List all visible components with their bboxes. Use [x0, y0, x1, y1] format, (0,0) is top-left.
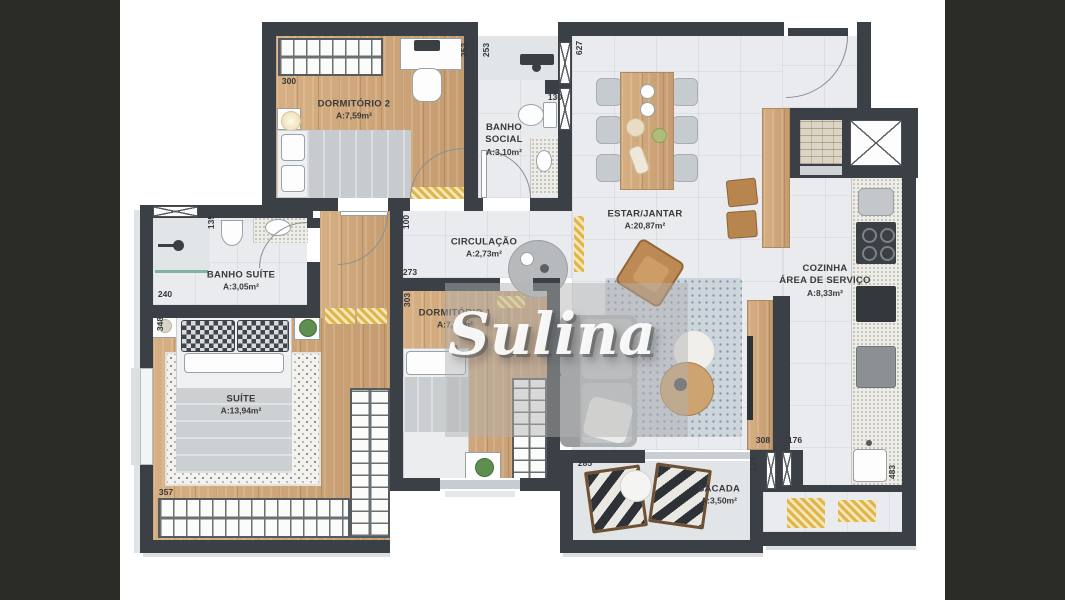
- plant-icon: [299, 319, 317, 337]
- wall: [470, 198, 483, 211]
- room-name: ESTAR/JANTAR: [608, 208, 683, 220]
- dim-label: 303: [402, 293, 412, 307]
- room-name: BANHO SUÍTE: [207, 269, 275, 281]
- blanket-dormitorio-1: [404, 432, 468, 479]
- wall: [530, 198, 572, 211]
- dim-label: 483: [887, 465, 897, 479]
- pillow-checkered: [181, 320, 235, 352]
- dining-chair: [672, 154, 698, 182]
- dim-label: 285: [578, 458, 592, 468]
- wall: [262, 22, 276, 198]
- room-area: A:8,33m²: [779, 288, 870, 299]
- window-dormitorio-1: [440, 478, 520, 491]
- dim-label: 300: [282, 76, 296, 86]
- wall: [307, 218, 320, 228]
- dim-label: 240: [158, 289, 172, 299]
- dim-label: 273: [403, 267, 417, 277]
- floor-service-balcony: [763, 492, 902, 532]
- room-name: ÁREA DE SERVIÇO: [779, 275, 870, 287]
- threshold-estar: [574, 216, 584, 272]
- tv-wall: [773, 296, 790, 450]
- room-area: A:3,10m²: [485, 147, 522, 158]
- room-name: COZINHA: [779, 263, 870, 275]
- monitor-icon: [414, 40, 440, 51]
- exterior-shadow-sacada: [563, 553, 763, 557]
- wall: [262, 22, 478, 36]
- room-name: SUÍTE: [221, 393, 262, 405]
- wall: [307, 262, 320, 305]
- service-mat-1: [787, 498, 825, 528]
- wall: [763, 532, 916, 546]
- shaft-ledge: [800, 166, 842, 175]
- window-sill: [131, 368, 140, 465]
- wall: [857, 22, 871, 112]
- room-label-estar-jantar: ESTAR/JANTAR A:20,87m²: [608, 208, 683, 231]
- shower-head-icon: [173, 240, 184, 251]
- dim-label: 348: [155, 317, 165, 331]
- wall: [520, 478, 560, 491]
- service-louver-icon: [782, 452, 792, 486]
- right-background-bar: [945, 0, 1065, 600]
- wall: [388, 198, 410, 211]
- duvet-dormitorio-2: [307, 130, 411, 198]
- burner-icon: [862, 246, 877, 261]
- lamp-icon: [281, 111, 301, 131]
- washer: [856, 346, 896, 388]
- floor-plan-canvas: DORMITÓRIO 2 A:7,59m² BANHO SOCIAL A:3,1…: [0, 0, 1065, 600]
- wardrobe-suite-bottom: [158, 498, 350, 538]
- bar-chair-1: [726, 178, 759, 208]
- tv-icon: [747, 336, 753, 420]
- room-name: BANHO: [485, 122, 522, 134]
- toilet-tank: [543, 102, 557, 128]
- burner-icon: [880, 228, 895, 243]
- wall: [560, 450, 573, 553]
- shower-head-icon: [532, 63, 541, 72]
- wall: [560, 540, 763, 553]
- pillow: [184, 353, 284, 373]
- wall: [140, 305, 320, 318]
- room-label-cozinha: COZINHA ÁREA DE SERVIÇO A:8,33m²: [779, 263, 870, 299]
- duct-louver-icon: [559, 42, 571, 84]
- room-label-banho-suite: BANHO SUÍTE A:3,05m²: [207, 269, 275, 292]
- wall: [763, 485, 902, 492]
- wardrobe-suite-right: [350, 388, 390, 538]
- fruit-bowl-icon: [652, 128, 667, 143]
- shower-glass: [155, 270, 208, 273]
- bowl-icon: [626, 118, 645, 137]
- room-label-banho-social: BANHO SOCIAL A:3,10m²: [485, 122, 522, 158]
- pillow: [281, 165, 305, 192]
- wall: [390, 291, 403, 491]
- balcony-glass-door: [645, 450, 750, 461]
- sink-basin: [536, 150, 552, 172]
- room-name: DORMITÓRIO 2: [318, 98, 391, 110]
- dim-label: 130: [548, 92, 562, 102]
- elevator-icon: [850, 120, 902, 166]
- room-label-circulacao: CIRCULAÇÃO A:2,73m²: [451, 236, 517, 259]
- faucet-icon: [866, 440, 872, 446]
- window-sill: [445, 491, 515, 497]
- room-name: SOCIAL: [485, 134, 522, 146]
- console-decor-icon: [540, 264, 549, 273]
- dim-label: 627: [574, 41, 584, 55]
- room-area: A:20,87m²: [608, 221, 683, 232]
- exterior-shadow-suite: [143, 553, 390, 557]
- wall: [902, 178, 916, 546]
- room-label-suite: SUÍTE A:13,94m²: [221, 393, 262, 416]
- dim-label: 123: [748, 457, 758, 471]
- exterior-shadow-service: [766, 546, 916, 550]
- kitchen-sink: [858, 188, 894, 216]
- dim-label: 308: [756, 435, 770, 445]
- room-area: A:2,73m²: [451, 249, 517, 260]
- burner-icon: [862, 228, 877, 243]
- plate-icon: [640, 84, 655, 99]
- wall: [140, 540, 390, 553]
- shaft-brick: [800, 120, 842, 164]
- window-suite: [140, 368, 153, 465]
- dim-label: 253: [459, 43, 469, 57]
- laundry-tub: [853, 449, 887, 482]
- kitchen-bar: [762, 108, 790, 248]
- toilet-banho-suite: [221, 220, 243, 246]
- wall: [390, 478, 440, 491]
- service-mat-2: [838, 500, 876, 522]
- dim-label: 135: [206, 215, 216, 229]
- service-louver-icon: [766, 452, 776, 489]
- wall: [140, 318, 153, 368]
- burner-icon: [880, 246, 895, 261]
- dining-chair: [596, 78, 622, 106]
- doormat-suite-b: [357, 308, 387, 324]
- plant-icon: [475, 458, 494, 477]
- dining-chair: [596, 116, 622, 144]
- plate-icon: [640, 102, 655, 117]
- dining-chair: [596, 154, 622, 182]
- doormat-suite-a: [325, 308, 355, 324]
- dining-chair: [672, 78, 698, 106]
- bar-chair-2: [726, 210, 758, 239]
- room-label-sacada: SACADA A:3,50m²: [698, 483, 740, 506]
- room-label-dormitorio-2: DORMITÓRIO 2 A:7,59m²: [318, 98, 391, 121]
- dim-label: 100: [401, 215, 411, 229]
- entry-door-leaf: [788, 28, 848, 36]
- room-area: A:3,50m²: [698, 496, 740, 507]
- dim-label: 176: [788, 435, 802, 445]
- dining-chair: [672, 116, 698, 144]
- room-name: CIRCULAÇÃO: [451, 236, 517, 248]
- window-louver-icon: [153, 206, 198, 217]
- wardrobe-dormitorio-2: [278, 38, 383, 76]
- watermark-text: Sulina: [448, 299, 688, 369]
- wall: [572, 22, 784, 36]
- console-decor-icon: [520, 252, 534, 266]
- dim-label: 357: [159, 487, 173, 497]
- wall: [140, 205, 153, 318]
- pillow: [281, 134, 305, 161]
- balcony-table: [620, 470, 652, 502]
- room-area: A:3,05m²: [207, 282, 275, 293]
- pillow-checkered: [237, 320, 289, 352]
- desk-chair-dormitorio-2: [412, 68, 442, 102]
- left-background-bar: [0, 0, 120, 600]
- room-area: A:7,59m²: [318, 111, 391, 122]
- room-area: A:13,94m²: [221, 406, 262, 417]
- dim-label: 253: [481, 43, 491, 57]
- room-name: SACADA: [698, 483, 740, 495]
